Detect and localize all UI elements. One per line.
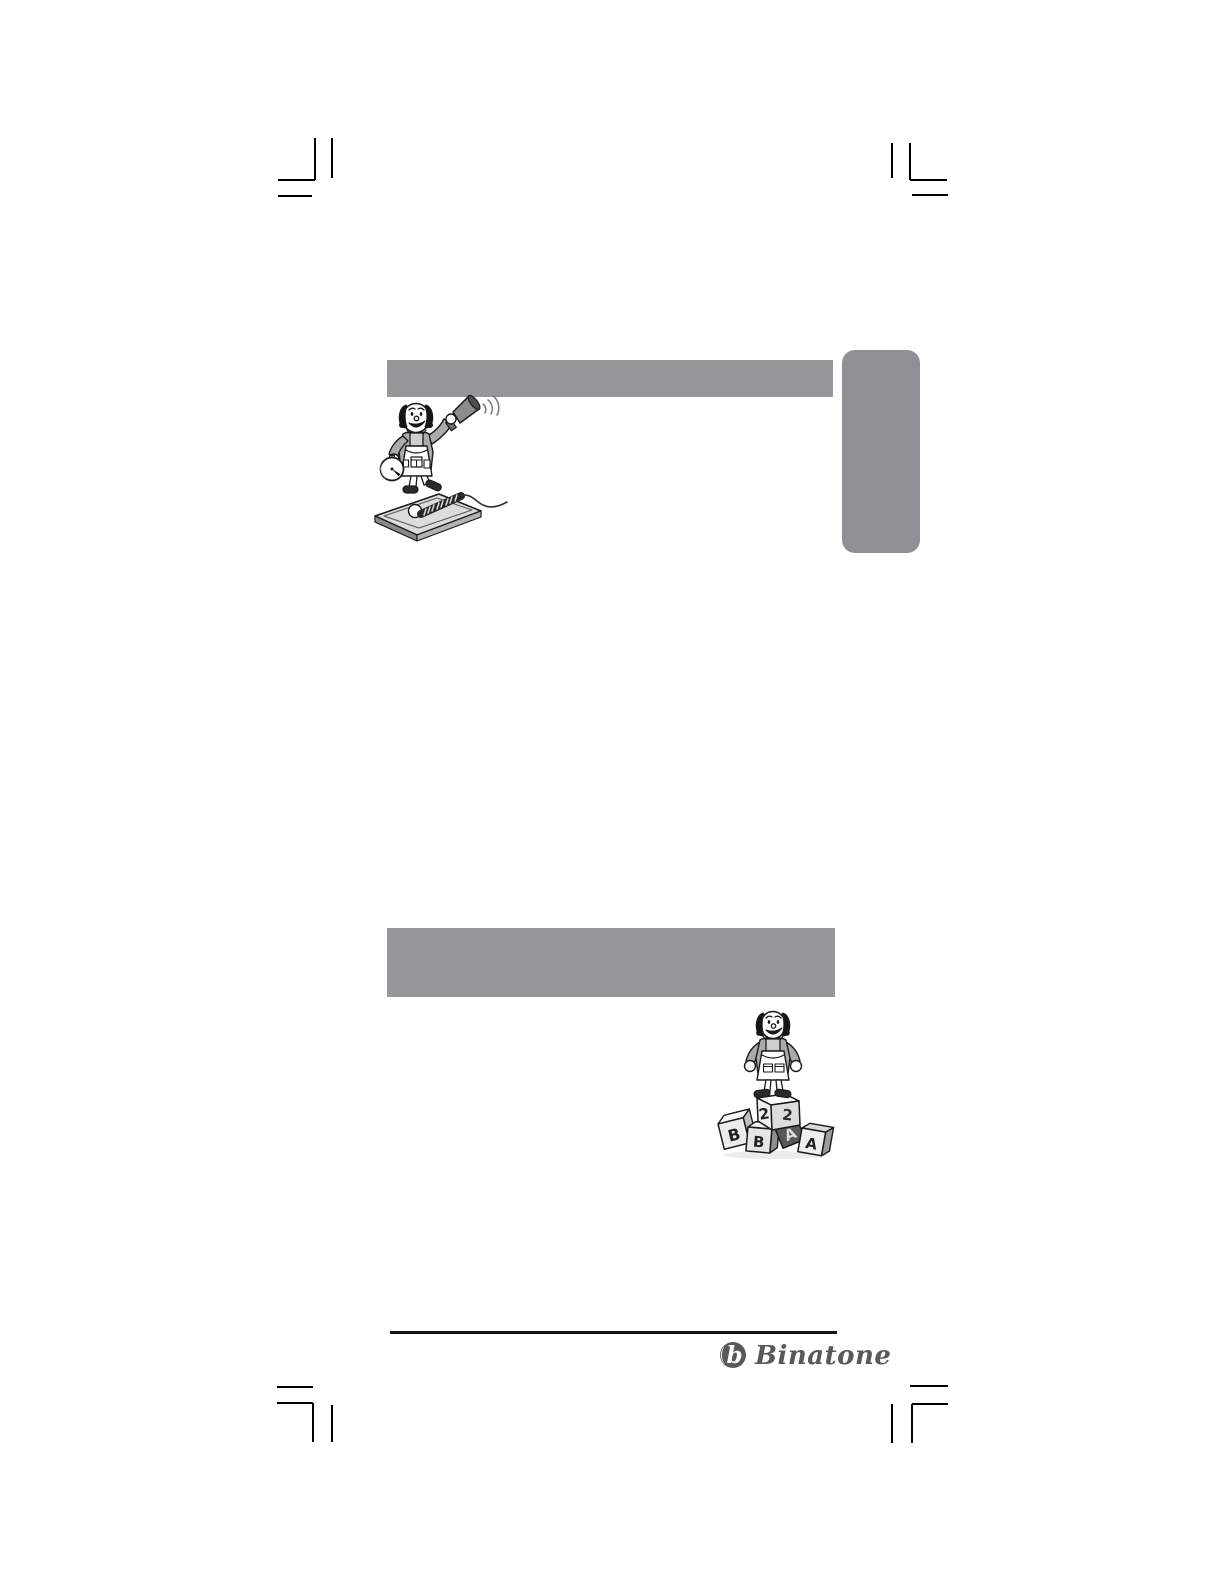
crop-mark-top-left [278,138,332,196]
cartoon-man [381,394,499,493]
binatone-logo-monogram: b [726,1342,742,1369]
man-standing-on-letter-blocks-icon: B B A A [710,1006,850,1161]
chapter-side-tab [842,350,920,553]
letter-blocks-icon: B B A A [716,1094,833,1157]
binatone-logo-icon: b [716,1334,752,1374]
man-with-megaphone-and-timer-beside-telephone-icon [369,394,511,544]
megaphone-icon [446,394,499,431]
binatone-logo-text: Binatone [755,1343,891,1369]
sound-waves-icon [483,396,499,415]
crop-mark-bottom-left [277,1387,332,1442]
block-letter: 2 [781,1106,793,1125]
crop-mark-top-right [892,143,948,195]
section-heading-bar-2 [387,928,835,997]
manual-page: B B A A [0,0,1225,1585]
crop-marks [0,0,1225,1585]
binatone-logo: b Binatone [716,1334,891,1374]
telephone-icon [375,493,507,542]
block-letter: B [752,1133,765,1152]
cartoon-man [745,1012,802,1099]
crop-mark-bottom-right [892,1386,948,1443]
section-heading-bar-1 [387,360,833,397]
